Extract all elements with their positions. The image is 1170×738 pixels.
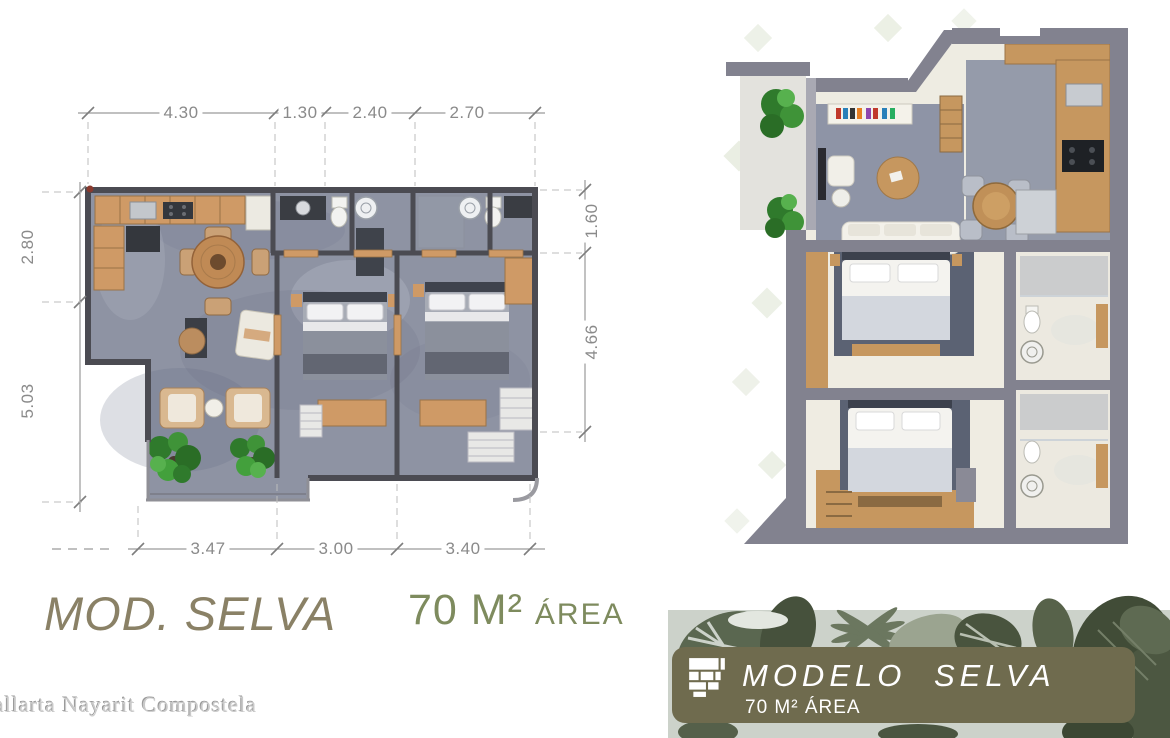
watermark-text: allarta Nayarit Compostela (0, 692, 257, 718)
floor-plan-3d-render (726, 22, 1128, 544)
banner-area-line: 70 M² ÁREA (745, 697, 861, 719)
dim-label-left-2: 5.03 (18, 379, 38, 422)
dim-label-bottom-3: 3.40 (441, 539, 484, 559)
area-label: ÁREA (535, 598, 625, 632)
area-value: 70 M² (408, 586, 523, 635)
dim-label-right-1: 1.60 (582, 199, 602, 242)
dim-label-top-4: 2.70 (445, 103, 488, 123)
dim-label-left-1: 2.80 (18, 225, 38, 268)
brochure-slide: { "plan2d": { "title": "MOD. SELVA", "ar… (0, 0, 1170, 738)
dim-label-bottom-2: 3.00 (314, 539, 357, 559)
dim-label-right-2: 4.66 (582, 320, 602, 363)
banner-model-label: MODELO (742, 658, 906, 694)
model-title: MOD. SELVA (44, 586, 336, 641)
dim-label-bottom-1: 3.47 (186, 539, 229, 559)
banner-model-name: SELVA (934, 658, 1056, 694)
floor-plan-2d (42, 107, 591, 555)
bed-1 (291, 292, 399, 380)
dim-label-top-1: 4.30 (159, 103, 202, 123)
stacked-planks-logo-icon (687, 656, 727, 698)
dim-label-top-3: 2.40 (348, 103, 391, 123)
dim-label-top-2: 1.30 (278, 103, 321, 123)
banner-panel: MODELO SELVA 70 M² ÁREA (672, 647, 1135, 723)
model-area: 70 M² ÁREA (408, 586, 625, 635)
